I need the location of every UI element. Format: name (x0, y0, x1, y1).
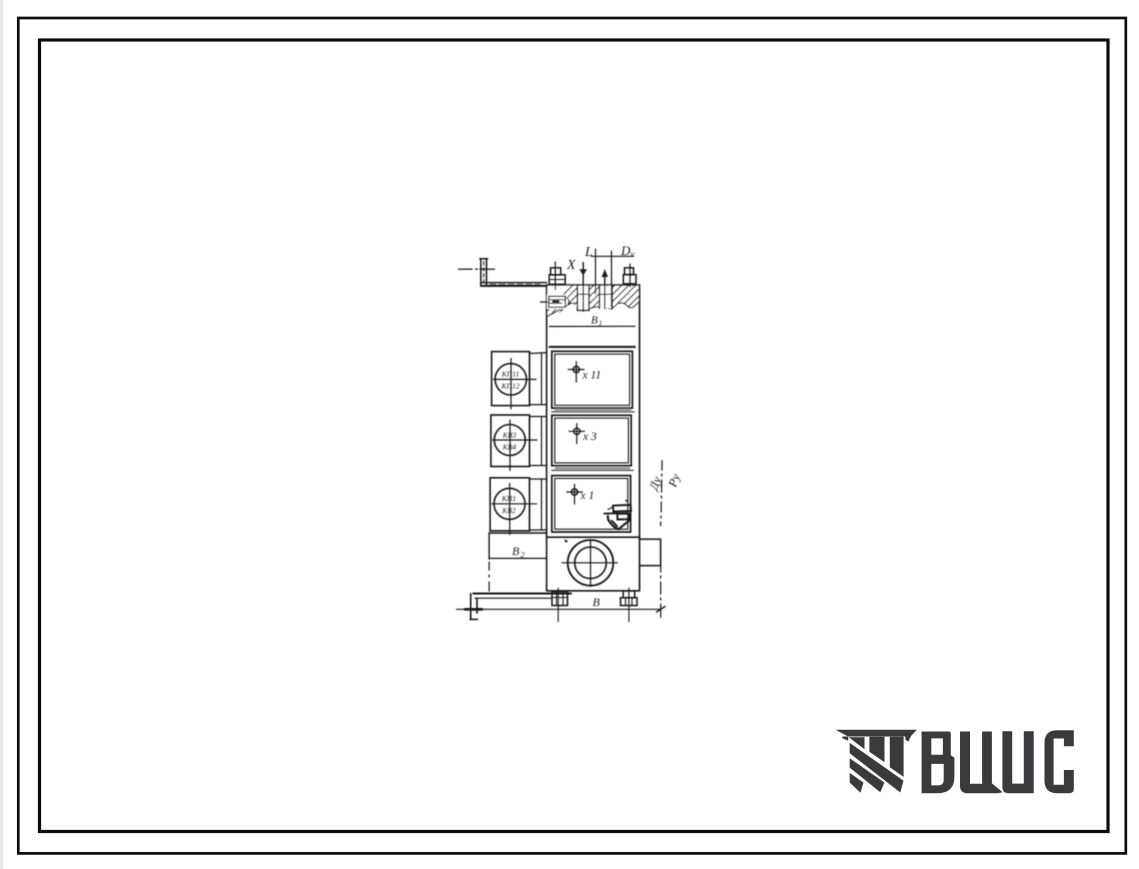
svg-text:В: В (512, 544, 520, 558)
svg-text:КВ2: КВ2 (501, 506, 516, 515)
svg-text:В: В (591, 315, 598, 327)
svg-text:х 3: х 3 (582, 431, 597, 443)
svg-text:L: L (584, 245, 593, 260)
svg-text:D: D (620, 243, 631, 258)
svg-text:v: v (631, 249, 635, 259)
svg-text:X: X (566, 258, 576, 273)
svg-text:В: В (593, 595, 601, 609)
svg-text:КВ3: КВ3 (502, 431, 517, 440)
svg-text:КВ4: КВ4 (502, 443, 517, 452)
svg-text:КП11: КП11 (501, 370, 520, 379)
svg-text:х 11: х 11 (582, 370, 602, 382)
svg-text:КП1: КП1 (501, 494, 516, 503)
svg-text:х 1: х 1 (580, 490, 595, 502)
svg-text:КП12: КП12 (500, 382, 519, 391)
